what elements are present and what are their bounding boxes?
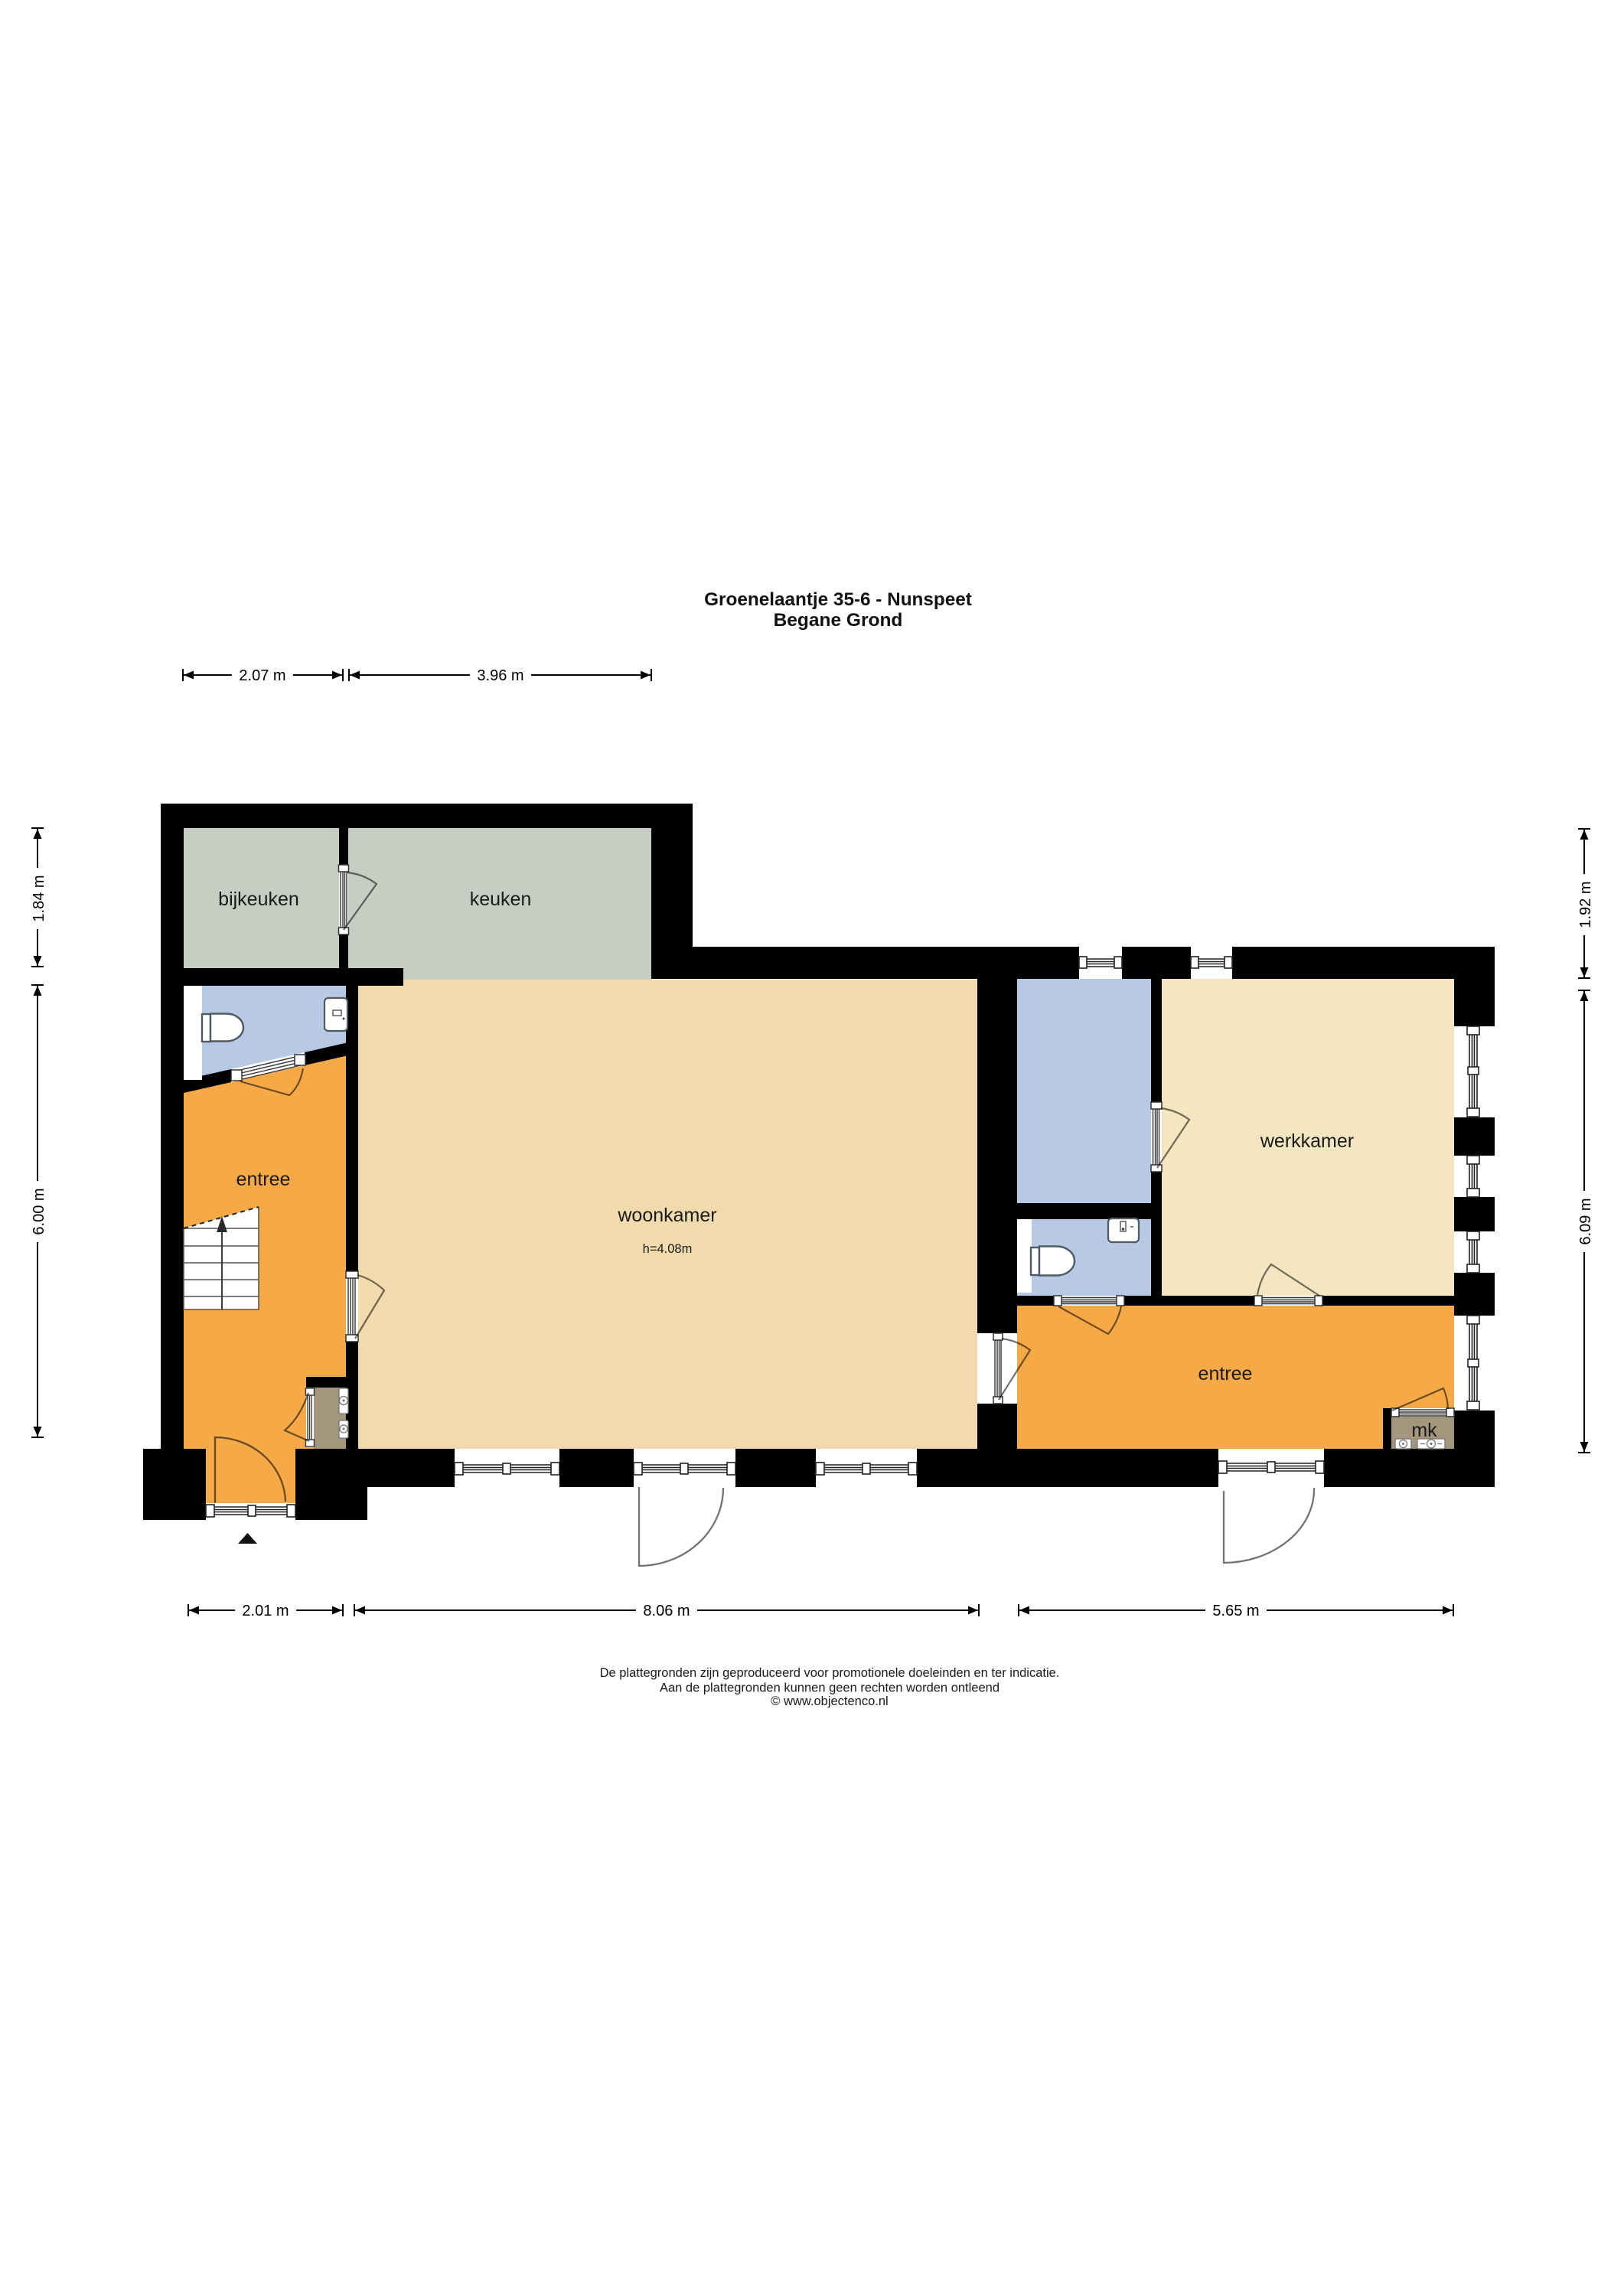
svg-text:woonkamer: woonkamer	[617, 1205, 716, 1226]
svg-text:Aan de plattegronden kunnen ge: Aan de plattegronden kunnen geen rechten…	[660, 1681, 1000, 1695]
svg-text:Begane Grond: Begane Grond	[774, 610, 903, 631]
svg-text:3.96 m: 3.96 m	[477, 667, 523, 684]
svg-text:keuken: keuken	[470, 889, 532, 910]
svg-text:6.09 m: 6.09 m	[1577, 1198, 1594, 1244]
svg-text:entree: entree	[236, 1169, 291, 1190]
svg-text:mk: mk	[1411, 1420, 1437, 1441]
svg-text:entree: entree	[1198, 1363, 1253, 1384]
svg-text:1.84 m: 1.84 m	[31, 875, 47, 921]
svg-text:© www.objectenco.nl: © www.objectenco.nl	[771, 1694, 888, 1708]
svg-text:bijkeuken: bijkeuken	[218, 889, 299, 910]
svg-text:2.01 m: 2.01 m	[242, 1603, 289, 1619]
svg-text:8.06 m: 8.06 m	[643, 1603, 690, 1619]
svg-text:6.00 m: 6.00 m	[31, 1188, 47, 1234]
svg-text:De plattegronden zijn geproduc: De plattegronden zijn geproduceerd voor …	[600, 1666, 1060, 1680]
svg-text:2.07 m: 2.07 m	[239, 667, 285, 684]
svg-text:1.92 m: 1.92 m	[1577, 881, 1594, 928]
svg-text:werkkamer: werkkamer	[1260, 1130, 1354, 1152]
svg-text:h=4.08m: h=4.08m	[643, 1242, 693, 1256]
svg-text:5.65 m: 5.65 m	[1212, 1603, 1259, 1619]
svg-text:Groenelaantje 35-6 - Nunspeet: Groenelaantje 35-6 - Nunspeet	[704, 589, 972, 610]
